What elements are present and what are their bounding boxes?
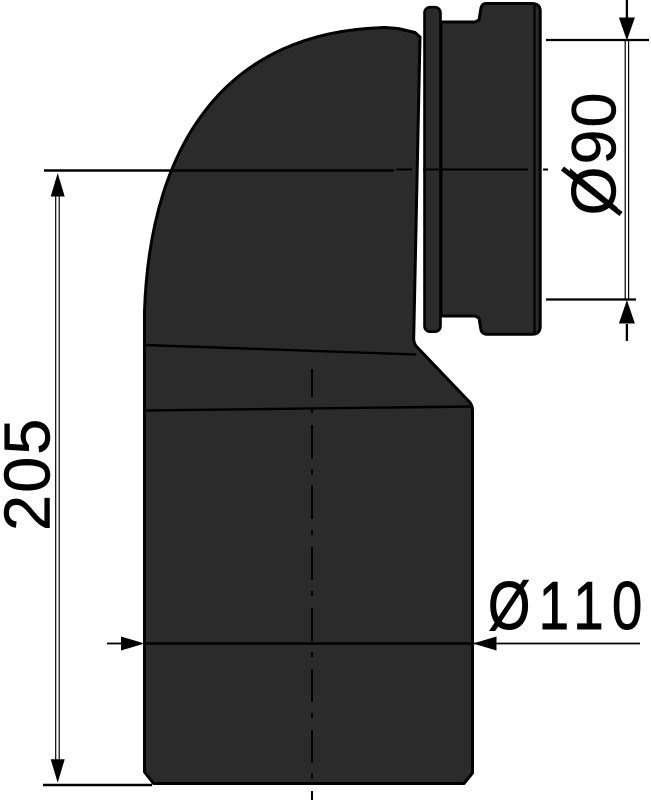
svg-text:Ø90: Ø90 [560, 90, 630, 215]
svg-text:205: 205 [0, 417, 64, 531]
svg-text:Ø110: Ø110 [488, 568, 651, 644]
